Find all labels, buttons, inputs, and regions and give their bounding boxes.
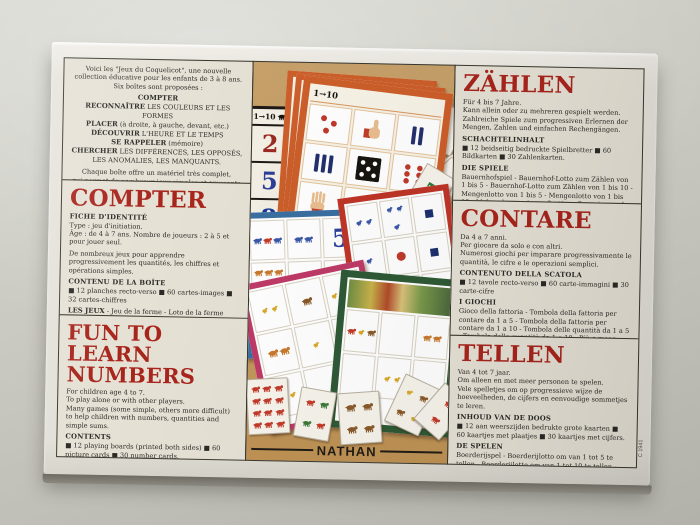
animal-cell — [286, 218, 322, 259]
animal-icon — [363, 424, 375, 433]
contare-contents-text: ■ 12 tavole recto-verso ■ 60 carte-immag… — [459, 278, 631, 298]
dots-cell — [305, 103, 352, 145]
bird-icon — [383, 374, 393, 382]
square-icon — [430, 247, 439, 256]
tally-bars-icon — [411, 126, 424, 145]
photo-background: Voici les "Jeux du Coquelicot", une nouv… — [0, 0, 700, 525]
picture-card-elephants — [246, 377, 291, 435]
intro-text: Voici les "Jeux du Coquelicot", une nouv… — [72, 64, 244, 93]
animal-icon — [432, 334, 442, 342]
range-label: 1→10 — [313, 88, 339, 101]
bird-icon — [354, 219, 364, 227]
print-code: C 1941 — [638, 439, 644, 457]
domino-five-icon — [355, 155, 382, 182]
animal-icon — [294, 235, 303, 242]
animal-icon — [305, 398, 315, 406]
game-box-back: Voici les "Jeux du Coquelicot", une nouv… — [44, 42, 658, 486]
animal-cell — [346, 202, 381, 243]
hand-cell — [350, 109, 397, 151]
bird-icon — [310, 340, 320, 349]
animal-cell — [249, 220, 285, 261]
bird-icon — [385, 205, 395, 213]
bird-icon — [357, 328, 367, 336]
nathan-logo: NATHAN — [317, 443, 377, 459]
square-icon — [424, 209, 433, 218]
panel-title-tellen: TELLEN — [458, 342, 630, 368]
compter-fiche-text: Type : jeu d'initiation. Âge : de 4 à 7 … — [69, 221, 241, 250]
domino-cell — [345, 148, 392, 190]
bird-icon — [395, 204, 405, 212]
rule-line — [381, 450, 443, 453]
compter-desc: De nombreux jeux pour apprendre progress… — [69, 249, 241, 278]
animal-icon — [346, 425, 358, 434]
animal-icon — [347, 327, 357, 335]
animal-icon — [264, 269, 273, 276]
animal-icon — [262, 385, 271, 392]
animal-icon — [315, 421, 325, 429]
bars-cell — [394, 114, 441, 156]
animal-icon — [263, 396, 272, 403]
range-label: 1→10 — [254, 112, 276, 121]
picture-card-cows — [337, 391, 382, 446]
animal-icon — [274, 384, 283, 391]
panel-fun-to-learn-numbers: FUN TO LEARN NUMBERS For children age 4 … — [56, 314, 249, 461]
panel-title-fun-line2: LEARN NUMBERS — [66, 342, 239, 387]
animal-icon — [301, 419, 311, 427]
bird-icon — [287, 390, 297, 399]
dot-icon — [397, 251, 407, 261]
animal-icon — [278, 345, 291, 356]
animal-cell — [379, 197, 414, 238]
bird-icon — [269, 304, 279, 313]
square-cell — [416, 231, 451, 272]
panel-title-zahlen: ZÄHLEN — [463, 72, 635, 98]
bird-icon — [329, 291, 339, 300]
tellen-intro: Van 4 tot 7 jaar. Om alleen en met meer … — [457, 368, 630, 413]
animal-icon — [254, 269, 263, 276]
fun-desc: For children age 4 to 7. To play alone o… — [66, 387, 239, 432]
animal-icon — [264, 408, 273, 415]
animal-icon — [422, 334, 432, 342]
bird-icon — [364, 257, 374, 265]
animal-cell — [247, 285, 291, 334]
rule-line — [251, 448, 313, 451]
animal-icon — [274, 268, 283, 275]
thumbs-up-hand-icon — [360, 116, 387, 143]
bars-cell — [301, 142, 348, 184]
animal-icon — [253, 237, 262, 244]
dots-icon — [314, 110, 343, 139]
panel-zahlen: ZÄHLEN Für 4 bis 7 Jahre. Kann allein od… — [452, 65, 645, 205]
intro-panel: Voici les "Jeux du Coquelicot", une nouv… — [61, 57, 253, 184]
picture-card-figures — [293, 386, 337, 442]
animal-cell — [294, 320, 338, 369]
tally-bars-icon — [314, 153, 334, 173]
animal-icon — [275, 408, 284, 415]
animal-icon — [276, 420, 285, 427]
animal-icon — [252, 409, 261, 416]
animal-icon — [395, 407, 406, 417]
panel-tellen: TELLEN Van 4 tot 7 jaar. Om alleen en me… — [447, 335, 639, 469]
animal-icon — [251, 385, 260, 392]
animal-cell — [413, 315, 450, 360]
bird-icon — [404, 387, 415, 397]
animal-icon — [319, 401, 329, 409]
animal-icon — [253, 421, 262, 428]
zahlen-intro: Für 4 bis 7 Jahre. Kann allein oder zu m… — [462, 98, 635, 135]
animal-cell — [343, 309, 380, 354]
dot-cell — [384, 236, 419, 277]
animal-cell — [256, 328, 300, 377]
compter-contents-text: ■ 12 planches recto-verso ■ 60 cartes-im… — [68, 286, 240, 306]
animal-icon — [300, 296, 313, 307]
animal-icon — [266, 348, 279, 359]
animal-icon — [264, 420, 273, 427]
intro-item: CHERCHER LES DIFFÉRENCES, LES OPPOSÉS, L… — [71, 146, 243, 167]
bird-icon — [393, 222, 403, 230]
panel-title-contare: CONTARE — [460, 206, 632, 232]
animal-icon — [362, 402, 374, 411]
panel-contare: CONTARE Da 4 a 7 anni. Per giocare da so… — [449, 199, 642, 340]
tellen-contents-text: ■ 12 aan weerszijden bedrukte grote kaar… — [456, 422, 628, 442]
animal-icon — [367, 329, 377, 337]
panel-compter: COMPTER FICHE D'IDENTITÉ Type : jeu d'in… — [59, 179, 252, 320]
contare-intro: Da 4 a 7 anni. Per giocare da solo e con… — [460, 232, 633, 269]
bird-icon — [259, 306, 269, 315]
square-cell — [411, 193, 446, 234]
animal-icon — [345, 403, 357, 412]
animal-icon — [273, 236, 282, 243]
animal-cell — [285, 277, 329, 326]
panel-title-compter: COMPTER — [70, 186, 242, 212]
animal-icon — [263, 237, 272, 244]
components-photo-panel: 1→10 2 3 5 6 8 9 — [245, 61, 456, 465]
brand-strip: NATHAN — [246, 441, 447, 461]
animal-icon — [304, 235, 313, 242]
tellen-games-text: Boerderijspel - Boerderijlotto om van 1 … — [455, 451, 628, 468]
animal-icon — [252, 397, 261, 404]
box-face: Voici les "Jeux du Coquelicot", une nouv… — [56, 57, 645, 468]
bird-icon — [364, 217, 374, 225]
empty-cell — [378, 312, 415, 357]
zahlen-contents-text: ■ 12 beidseitig bedruckte Spielbretter ■… — [462, 144, 634, 164]
animal-icon — [430, 413, 441, 424]
fun-contents-text: ■ 12 playing boards (printed both sides)… — [65, 442, 237, 461]
animal-icon — [274, 396, 283, 403]
